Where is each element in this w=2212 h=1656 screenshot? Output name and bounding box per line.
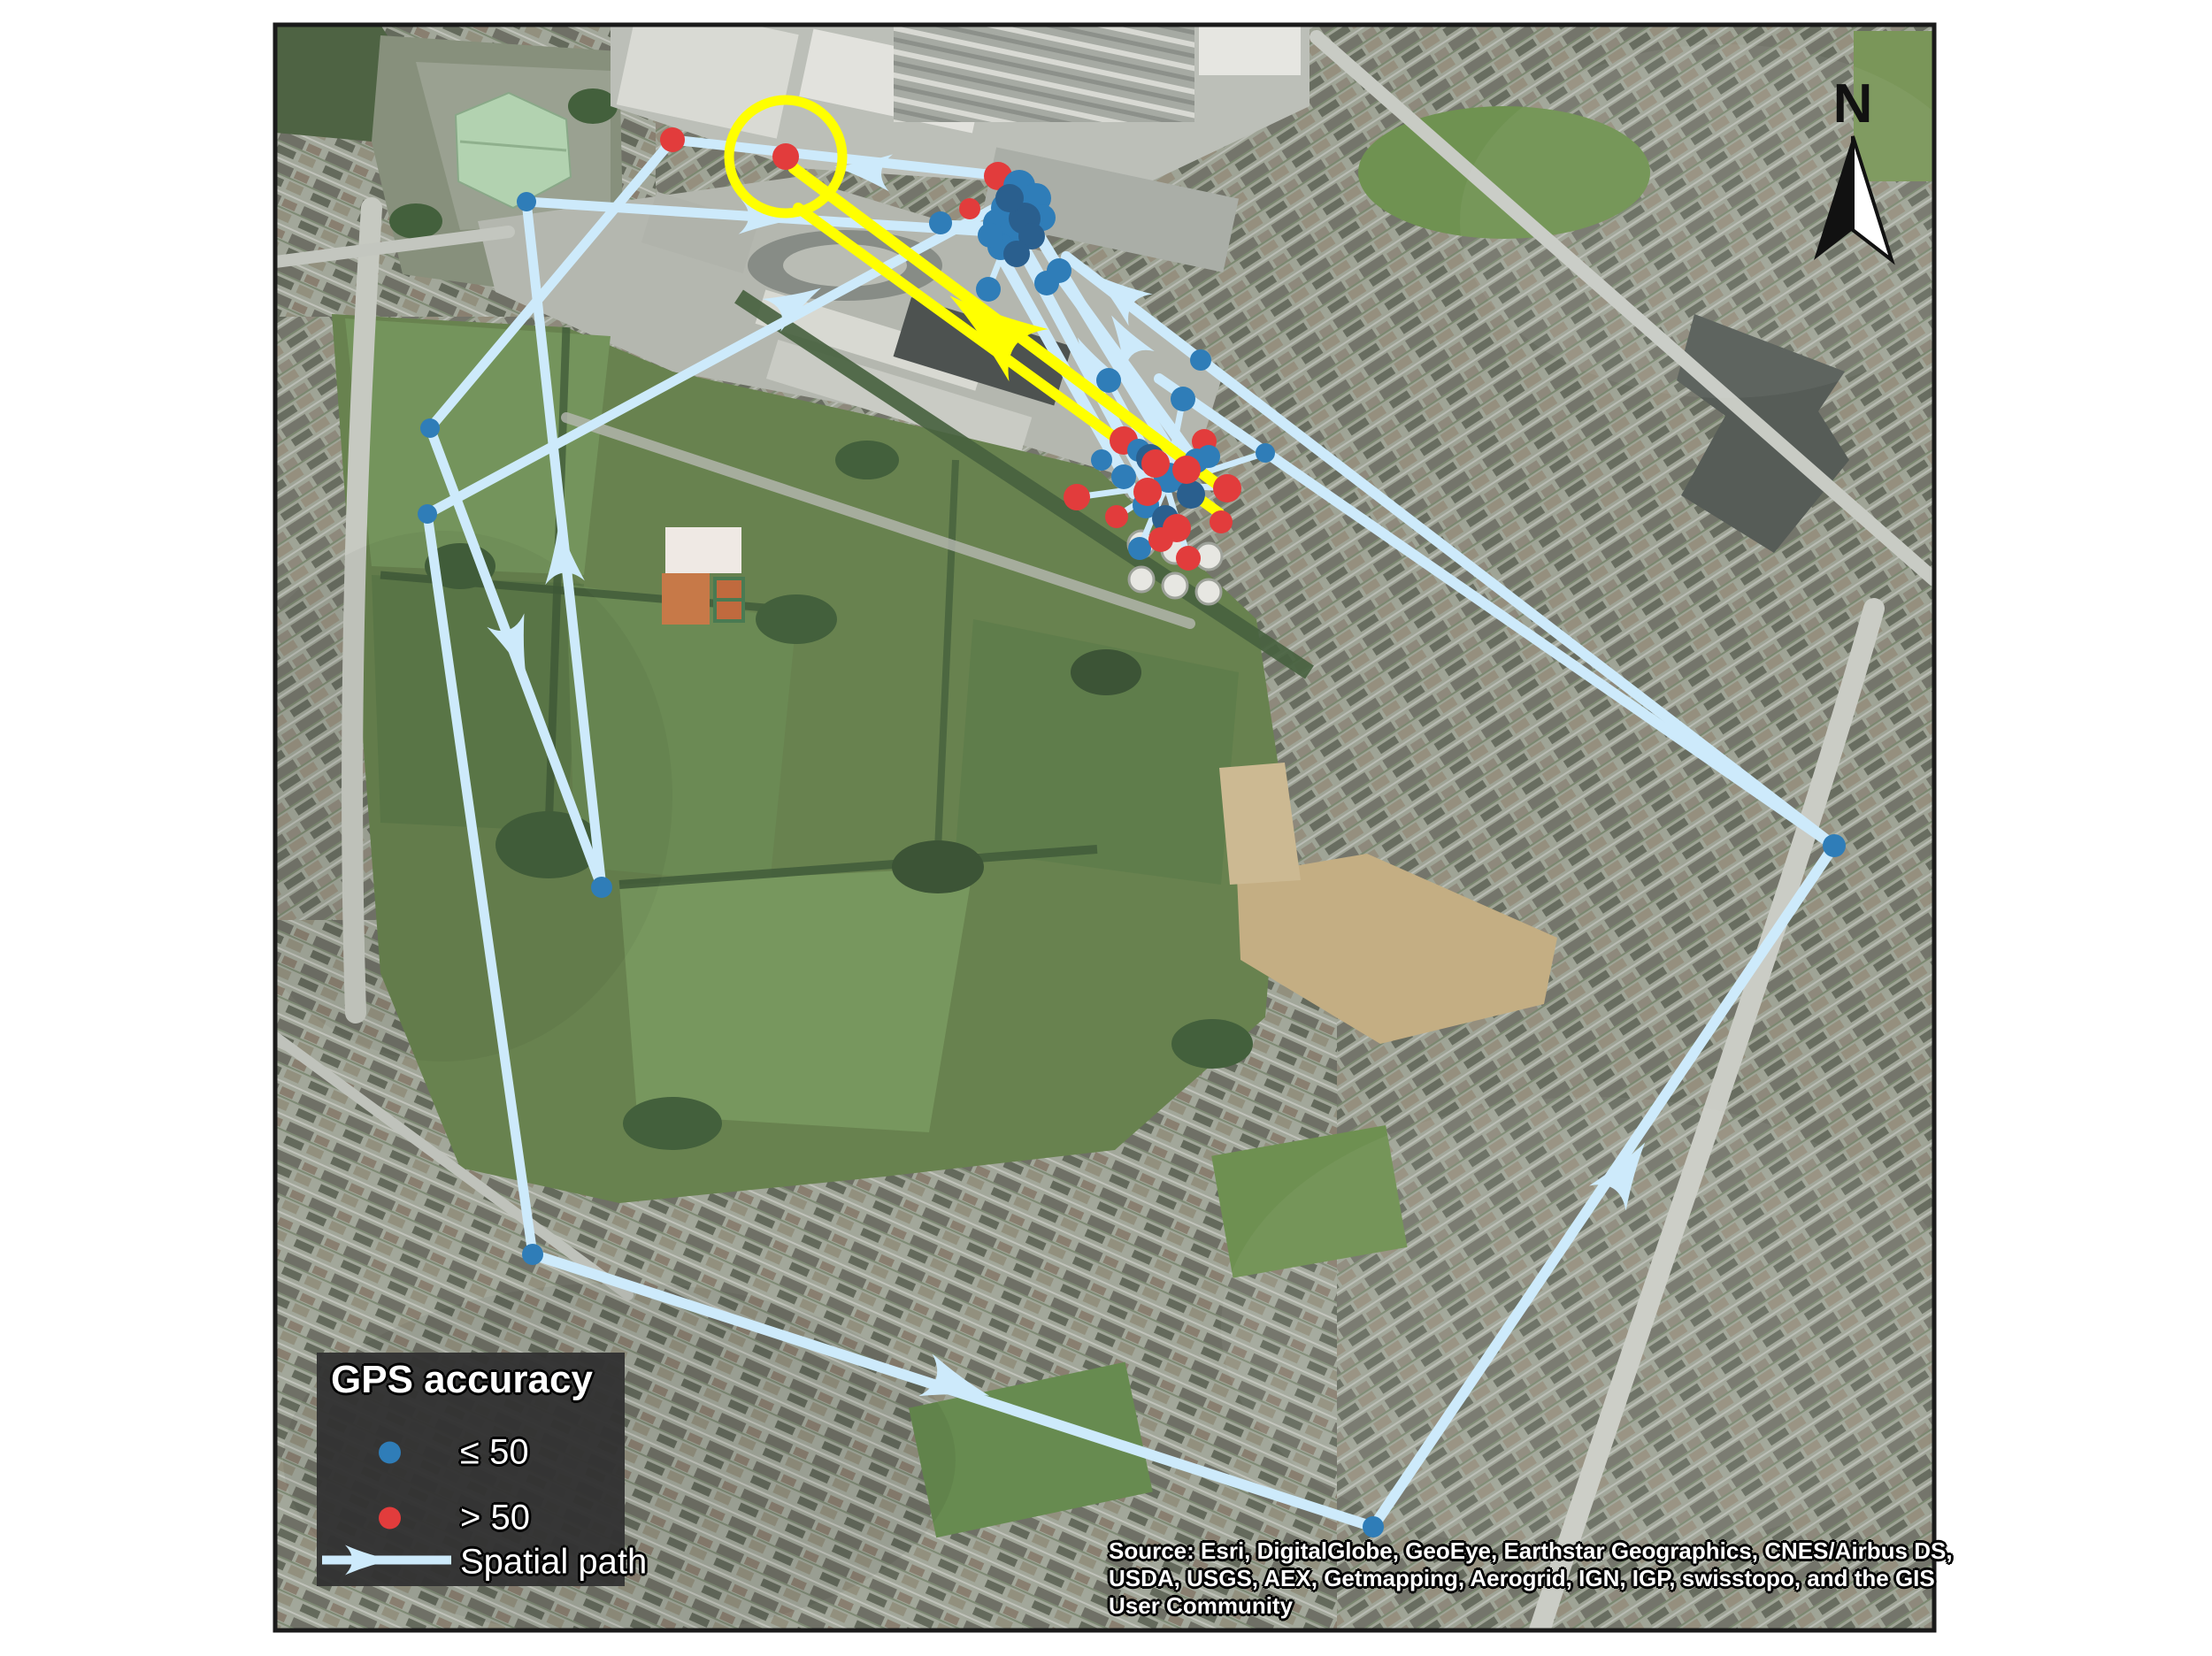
attribution-line: USDA, USGS, AEX, Getmapping, Aerogrid, I…	[1109, 1565, 1949, 1592]
figure: GPS accuracy ≤ 50 > 50 Spatial path N	[0, 0, 2212, 1656]
red-dot-icon	[379, 1507, 401, 1529]
north-label: N	[1803, 78, 1902, 131]
legend-item-good-accuracy: ≤ 50	[317, 1430, 625, 1475]
north-arrow: N	[1803, 78, 1902, 270]
attribution-line: Source: Esri, DigitalGlobe, GeoEye, Eart…	[1109, 1537, 1949, 1565]
legend-item-bad-accuracy: > 50	[317, 1496, 625, 1540]
legend-item-spatial-path: Spatial path	[317, 1540, 625, 1584]
north-arrow-icon	[1803, 131, 1902, 265]
legend-item-label: Spatial path	[460, 1543, 647, 1583]
legend: GPS accuracy ≤ 50 > 50 Spatial path	[317, 1353, 625, 1586]
legend-title: GPS accuracy	[331, 1358, 593, 1402]
legend-item-label: ≤ 50	[460, 1433, 529, 1473]
legend-item-label: > 50	[460, 1499, 530, 1538]
attribution: Source: Esri, DigitalGlobe, GeoEye, Eart…	[1109, 1537, 1949, 1620]
attribution-line: User Community	[1109, 1592, 1949, 1620]
spatial-path-arrow-icon	[320, 1539, 453, 1582]
blue-dot-icon	[379, 1442, 401, 1464]
